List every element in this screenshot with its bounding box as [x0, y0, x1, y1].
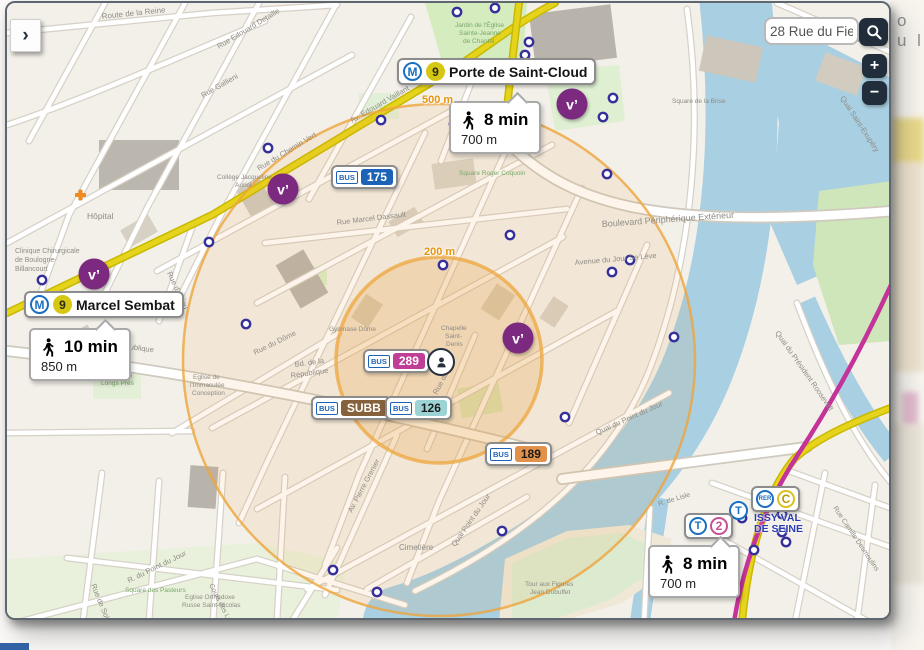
walking-icon — [660, 555, 674, 574]
walk-tooltip-porte-de-saint-cloud: 8 min 700 m — [449, 101, 541, 154]
walk-distance: 850 m — [41, 359, 118, 374]
station-badge-marcel-sembat[interactable]: M 9 Marcel Sembat — [24, 291, 184, 318]
walk-distance: 700 m — [660, 576, 727, 591]
background-blur-shape — [893, 162, 924, 372]
poi-marker — [439, 261, 447, 269]
zoom-out-button[interactable]: − — [862, 81, 887, 105]
poi-marker — [205, 238, 213, 246]
poi-marker — [264, 144, 272, 152]
poi-marker — [498, 527, 506, 535]
street-label: Cimetière — [399, 543, 434, 552]
bus-badge-SUBB[interactable]: BUSSUBB — [311, 396, 392, 420]
street-label: Jardin de l'Église — [455, 20, 504, 29]
line-9-icon: 9 — [53, 295, 72, 314]
poi-marker — [491, 4, 499, 12]
background-blue-tab — [0, 643, 29, 650]
bus-number: 175 — [361, 169, 393, 185]
bus-logo-chip: BUS — [316, 402, 338, 415]
poi-marker — [373, 588, 381, 596]
street-label: Billancourt — [15, 266, 48, 273]
poi-marker — [453, 8, 461, 16]
t2-badge[interactable]: T 2 — [684, 513, 733, 539]
bus-number: 189 — [515, 446, 547, 462]
velib-marker[interactable]: v’ — [557, 89, 588, 120]
radius-label-outer: 500 m — [422, 94, 453, 106]
poi-marker — [561, 413, 569, 421]
issy-station-label: ISSY VAL DE SEINE — [754, 513, 814, 535]
street-label: Clinique Chirurgicale — [15, 248, 80, 255]
rer-line-c-icon: C — [777, 490, 795, 508]
poi-marker — [38, 276, 46, 284]
poi-marker — [242, 320, 250, 328]
street-label: Collège Jacqueline — [217, 174, 272, 181]
bus-badge-126[interactable]: BUS126 — [385, 396, 452, 420]
line-9-icon: 9 — [426, 62, 445, 81]
metro-icon: M — [30, 295, 49, 314]
street-label: Russe Saint-Nicolas — [182, 602, 241, 609]
bus-badge-175[interactable]: BUS175 — [331, 165, 398, 189]
bus-badge-289[interactable]: BUS289 — [363, 349, 430, 373]
street-label: de Boulogne- — [15, 257, 57, 264]
address-marker — [427, 348, 455, 376]
street-label: Longs Prés — [101, 380, 135, 387]
street-label: Eglise de — [193, 374, 220, 381]
bus-number: SUBB — [341, 400, 387, 416]
street-label: Square Roger Coquoin — [459, 170, 526, 177]
poi-marker — [599, 113, 607, 121]
velib-marker[interactable]: v’ — [268, 174, 299, 205]
street-label: Conception — [192, 390, 225, 397]
metro-icon: M — [403, 62, 422, 81]
background-blur-shape — [893, 118, 924, 164]
station-name: Porte de Saint-Cloud — [449, 64, 587, 80]
walk-time: 10 min — [64, 337, 118, 357]
search-button[interactable] — [859, 18, 888, 46]
search-input[interactable] — [764, 17, 859, 45]
station-name: Marcel Sembat — [76, 297, 175, 313]
street-label: Jean Dubuffet — [530, 589, 571, 596]
poi-marker — [377, 116, 385, 124]
poi-marker — [608, 268, 616, 276]
bus-logo-chip: BUS — [368, 355, 390, 368]
zoom-in-button[interactable]: + — [862, 54, 887, 78]
bus-badge-189[interactable]: BUS189 — [485, 442, 552, 466]
walk-time: 8 min — [484, 110, 528, 130]
poi-marker — [609, 94, 617, 102]
bus-logo-chip: BUS — [390, 402, 412, 415]
street-label: Saint- — [445, 333, 462, 340]
tram-icon: T — [689, 517, 707, 535]
poi-marker — [329, 566, 337, 574]
walking-icon — [41, 338, 55, 357]
walk-tooltip-issy: 8 min 700 m — [648, 545, 740, 598]
bus-number: 289 — [393, 353, 425, 369]
person-icon — [434, 355, 449, 370]
rer-badge[interactable]: RER C — [751, 486, 800, 512]
street-label: l'Immaculée — [190, 382, 225, 389]
street-label: Gymnase Dôme — [329, 326, 376, 333]
expand-panel-button[interactable]: › — [10, 19, 41, 52]
background-page-column — [891, 0, 924, 650]
bus-logo-chip: BUS — [490, 448, 512, 461]
street-label: Square des Pasteurs — [125, 587, 186, 594]
bus-number: 126 — [415, 400, 447, 416]
street-label: de Chantal — [463, 38, 495, 45]
background-text-fragment: o u l — [897, 11, 924, 51]
street-label: Tour aux Figures — [525, 581, 574, 588]
radius-label-inner: 200 m — [424, 246, 455, 258]
rer-icon: RER — [756, 490, 774, 508]
street-label: Auriol — [235, 182, 252, 189]
chevron-right-icon: › — [22, 25, 28, 47]
poi-marker — [603, 170, 611, 178]
street-label: Eglise Orthodoxe — [185, 594, 235, 601]
poi-marker — [750, 546, 758, 554]
search-icon — [865, 23, 883, 41]
street-label: Denis — [446, 341, 463, 348]
walking-icon — [461, 111, 475, 130]
map-window: Route de la ReineRue Edouard DetailleRue… — [5, 1, 891, 620]
poi-marker — [506, 231, 514, 239]
velib-marker[interactable]: v’ — [503, 323, 534, 354]
walk-tooltip-marcel-sembat: 10 min 850 m — [29, 328, 131, 381]
issy-station-label-line2: DE SEINE — [754, 524, 814, 535]
street-label: Chapelle — [441, 325, 467, 332]
poi-marker — [670, 333, 678, 341]
station-badge-porte-de-saint-cloud[interactable]: M 9 Porte de Saint-Cloud — [397, 58, 596, 85]
tram-line-2-icon: 2 — [710, 517, 728, 535]
street-label: Square de la Brise — [672, 98, 726, 105]
page: { "page_background": {"text_fragment": "… — [0, 0, 924, 650]
street-label: Hôpital — [87, 211, 114, 221]
street-label: Sainte-Jeanne — [459, 30, 501, 37]
background-blur-shape — [893, 424, 924, 584]
velib-marker[interactable]: v’ — [79, 259, 110, 290]
poi-marker — [525, 38, 533, 46]
background-blur-shape — [902, 392, 918, 426]
walk-time: 8 min — [683, 554, 727, 574]
bus-logo-chip: BUS — [336, 171, 358, 184]
walk-distance: 700 m — [461, 132, 528, 147]
poi-marker — [782, 538, 790, 546]
